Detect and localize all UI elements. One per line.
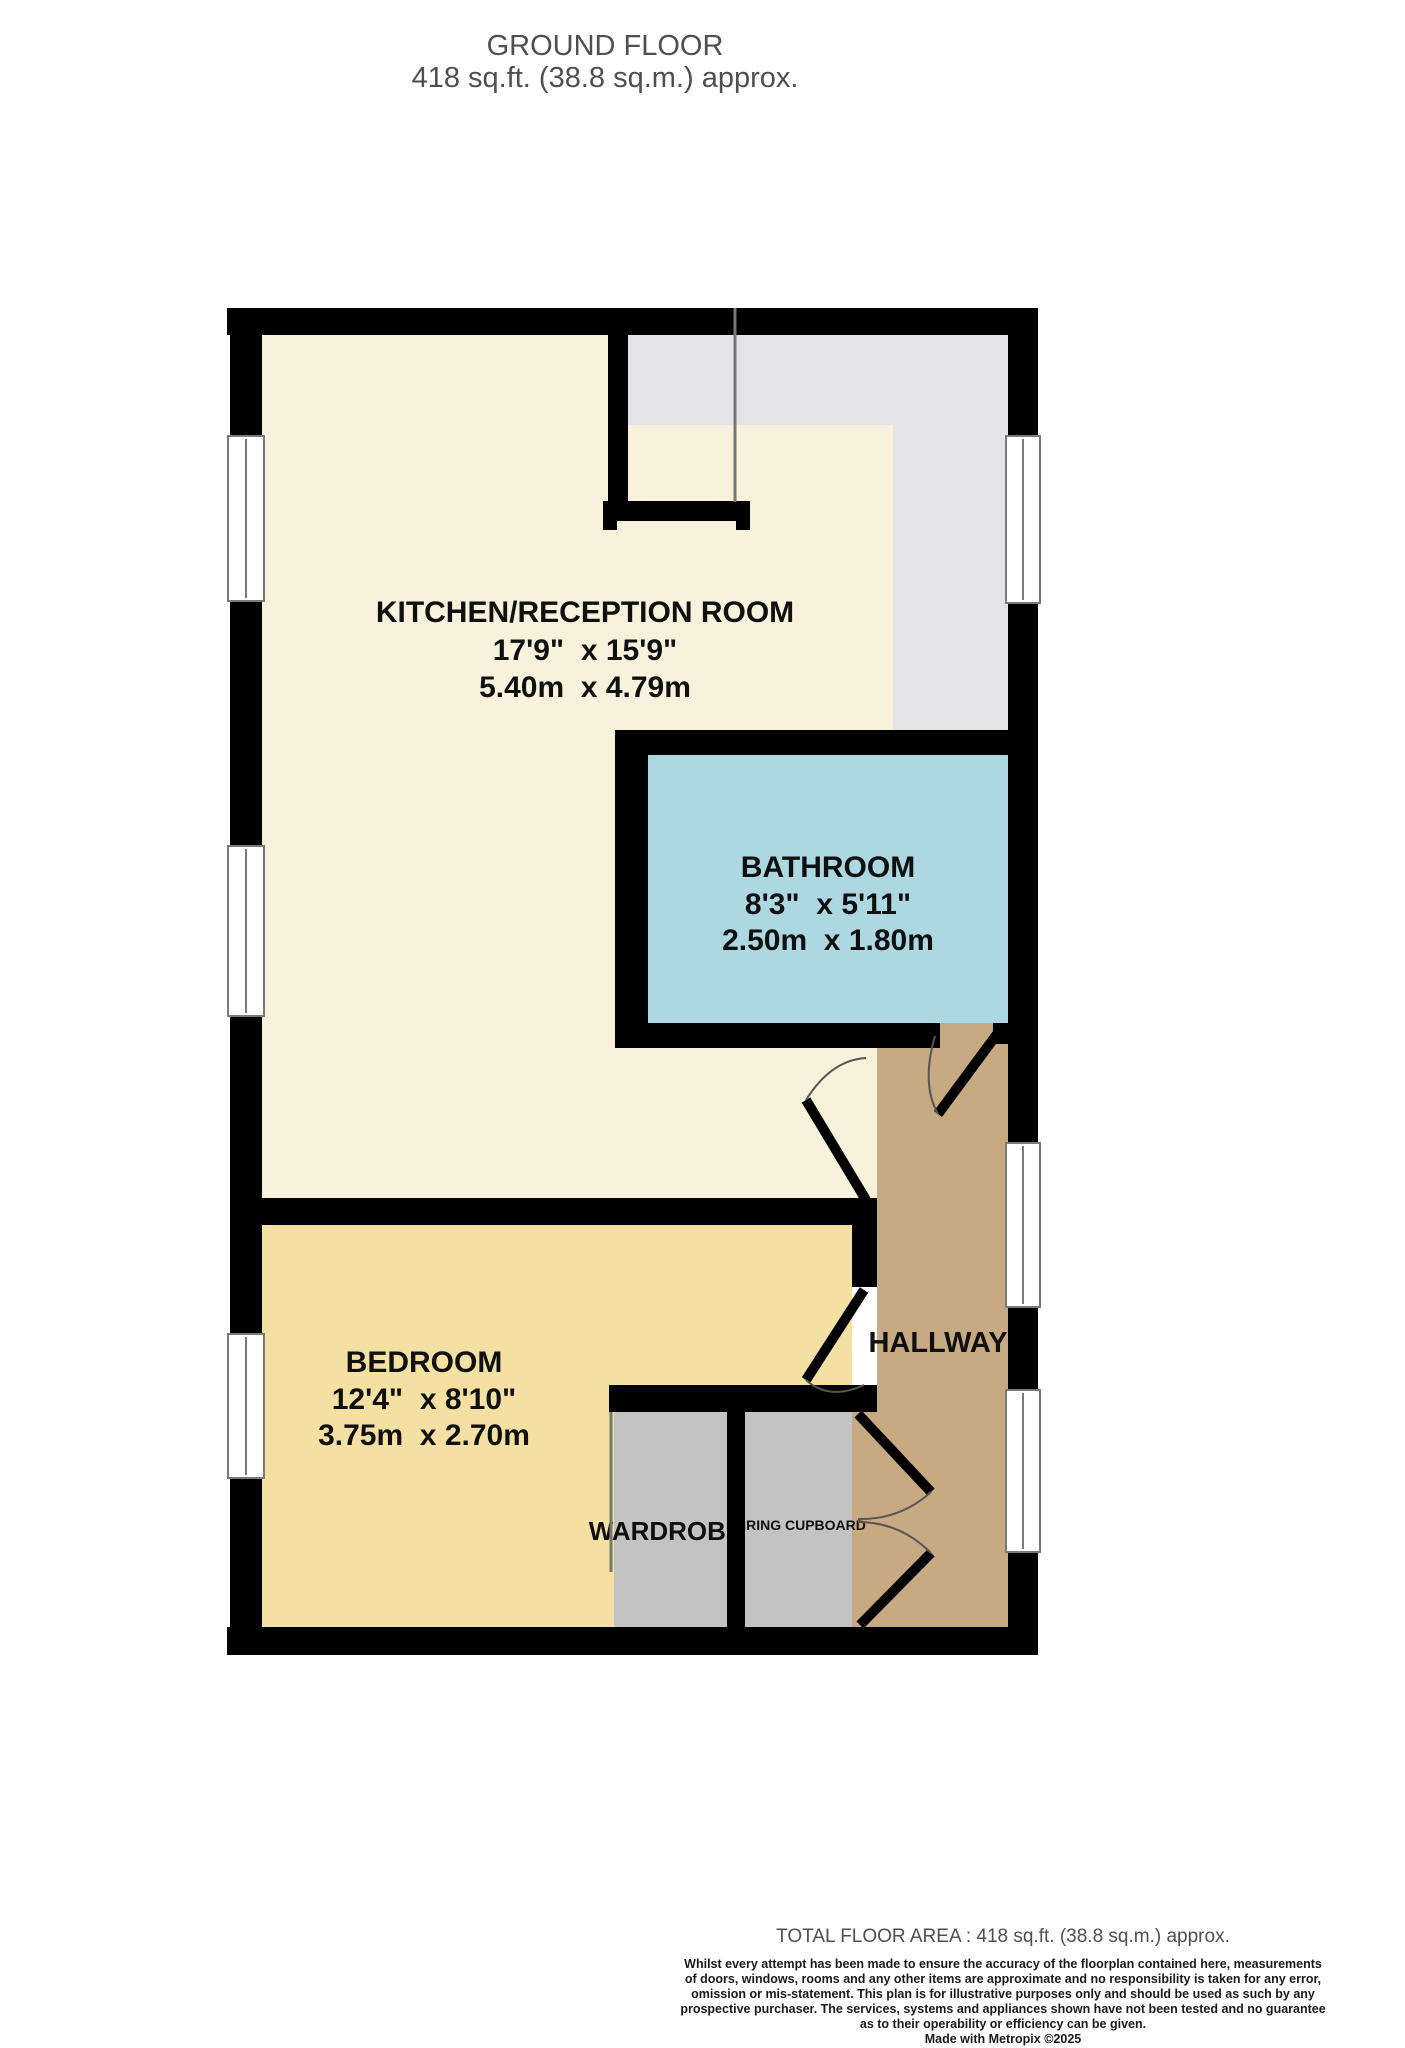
hallway-label: HALLWAY: [868, 1327, 1007, 1359]
kitchen-name: KITCHEN/RECEPTION ROOM: [376, 596, 794, 629]
floorplan-page: GROUND FLOOR 418 sq.ft. (38.8 sq.m.) app…: [0, 0, 1405, 2048]
wall-bathroom-bottom: [615, 1023, 940, 1048]
airing-cupboard-label: AIRING CUPBOARD: [732, 1517, 866, 1533]
disclaimer-line: of doors, windows, rooms and any other i…: [653, 1972, 1353, 1987]
wall-partition-endcap-left: [603, 501, 617, 530]
bathroom-name: BATHROOM: [741, 851, 915, 884]
kitchen-size-metric: 5.40m x 4.79m: [479, 671, 691, 704]
bedroom-size-metric: 3.75m x 2.70m: [318, 1419, 530, 1452]
wall-outer-bottom: [227, 1627, 1038, 1655]
metropix-credit: Made with Metropix ©2025: [653, 2032, 1353, 2047]
disclaimer-line: Whilst every attempt has been made to en…: [653, 1957, 1353, 1972]
window-right-bottom: [1006, 1390, 1040, 1552]
disclaimer-line: omission or mis-statement. This plan is …: [653, 1987, 1353, 2002]
wall-cupboard-top: [609, 1385, 877, 1412]
wall-bedroom-hallway-upper: [852, 1225, 877, 1287]
bedroom-label: BEDROOM 12'4" x 8'10" 3.75m x 2.70m: [318, 1346, 530, 1452]
wall-partition-endcap-right: [736, 501, 750, 530]
floorplan-drawing: WARDROBE AIRING CUPBOARD: [0, 0, 1405, 2048]
wall-bathroom-top: [615, 730, 1008, 755]
window-left-bottom: [228, 1334, 264, 1478]
wall-kitchen-bedroom-divider: [262, 1198, 877, 1225]
window-right-top: [1006, 436, 1040, 603]
wall-kitchen-partition-horizontal: [608, 501, 748, 521]
window-right-middle: [1006, 1143, 1040, 1307]
plan-footer: TOTAL FLOOR AREA : 418 sq.ft. (38.8 sq.m…: [653, 1926, 1353, 2047]
bathroom-size-imperial: 8'3" x 5'11": [745, 888, 911, 921]
wall-bathroom-left: [615, 730, 648, 1048]
bedroom-size-imperial: 12'4" x 8'10": [332, 1383, 517, 1416]
bathroom-label: BATHROOM 8'3" x 5'11" 2.50m x 1.80m: [722, 851, 934, 957]
total-floor-area: TOTAL FLOOR AREA : 418 sq.ft. (38.8 sq.m…: [653, 1926, 1353, 1948]
bedroom-name: BEDROOM: [346, 1346, 503, 1379]
disclaimer-line: as to their operability or efficiency ca…: [653, 2017, 1353, 2032]
wall-outer-top: [227, 308, 1038, 335]
disclaimer-line: prospective purchaser. The services, sys…: [653, 2002, 1353, 2017]
kitchen-size-imperial: 17'9" x 15'9": [493, 634, 678, 667]
wall-wardrobe-cupboard-divider: [727, 1412, 745, 1627]
bathroom-size-metric: 2.50m x 1.80m: [722, 924, 934, 957]
window-left-top: [228, 436, 264, 601]
window-left-middle: [228, 846, 264, 1016]
wall-kitchen-partition-vertical: [608, 335, 628, 521]
